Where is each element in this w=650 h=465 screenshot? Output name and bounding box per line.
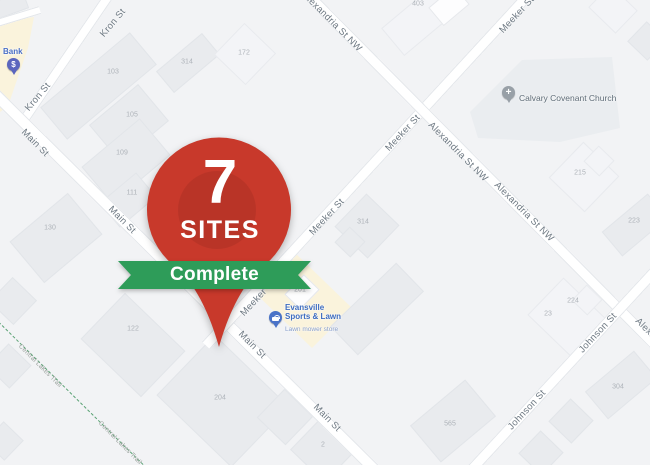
building: [0, 421, 24, 461]
building-number: 172: [238, 50, 250, 57]
building-number: 304: [612, 384, 624, 391]
site-count-label: SITES: [130, 218, 310, 243]
building: [588, 0, 638, 34]
building-number: 103: [107, 69, 119, 76]
church-pin-tail: [506, 98, 512, 103]
status-banner: Complete: [118, 261, 311, 289]
dollar-pin-tail: [11, 70, 17, 75]
building-number: 215: [574, 170, 586, 177]
building-number: 109: [116, 150, 128, 157]
building-number: 2: [321, 442, 325, 449]
site-count: 7: [130, 152, 310, 214]
building: [518, 430, 563, 465]
building-number: 204: [214, 395, 226, 402]
building-number: 23: [544, 311, 552, 318]
building: [10, 193, 103, 283]
street-label: Alexandria St NW: [300, 0, 364, 54]
building-number: 314: [357, 219, 369, 226]
building: [602, 193, 650, 256]
street-label: Alexandria St NW: [492, 180, 556, 244]
status-banner-label: Complete: [118, 261, 311, 289]
bank-label[interactable]: Bank: [3, 47, 23, 56]
building-number: 223: [628, 218, 640, 225]
building-number: 403: [412, 1, 424, 8]
building-number: 224: [567, 298, 579, 305]
map-canvas: Kron St Kron St Main St Main St Main St …: [0, 0, 650, 465]
building: [627, 21, 650, 61]
building: [0, 277, 37, 325]
church-label[interactable]: Calvary Covenant Church: [519, 93, 616, 103]
building: [548, 398, 593, 443]
street-label: Meeker St: [383, 112, 422, 153]
building-number: 130: [44, 225, 56, 232]
trail-label: Central Lakes Trail: [97, 420, 143, 465]
street-label: Johnson St: [506, 388, 549, 432]
building: [549, 142, 620, 213]
building-number: 314: [181, 59, 193, 66]
building-number: 565: [444, 421, 456, 428]
